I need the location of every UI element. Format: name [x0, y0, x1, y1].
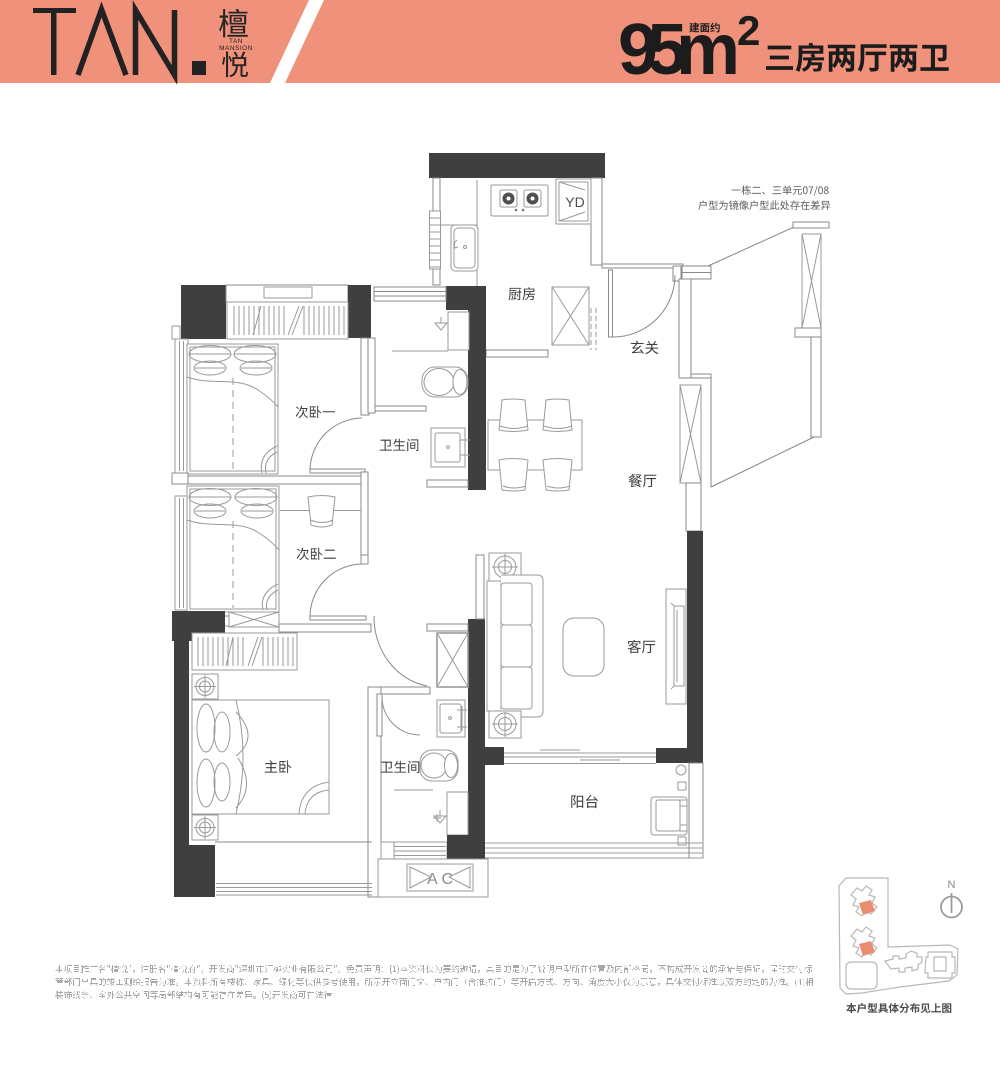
svg-text:MANSION: MANSION [219, 45, 253, 52]
svg-text:TAN: TAN [229, 38, 243, 45]
svg-text:95m: 95m [618, 10, 740, 90]
svg-text:N: N [948, 879, 956, 891]
svg-text:YD: YD [565, 194, 584, 210]
svg-text:2: 2 [737, 7, 760, 54]
